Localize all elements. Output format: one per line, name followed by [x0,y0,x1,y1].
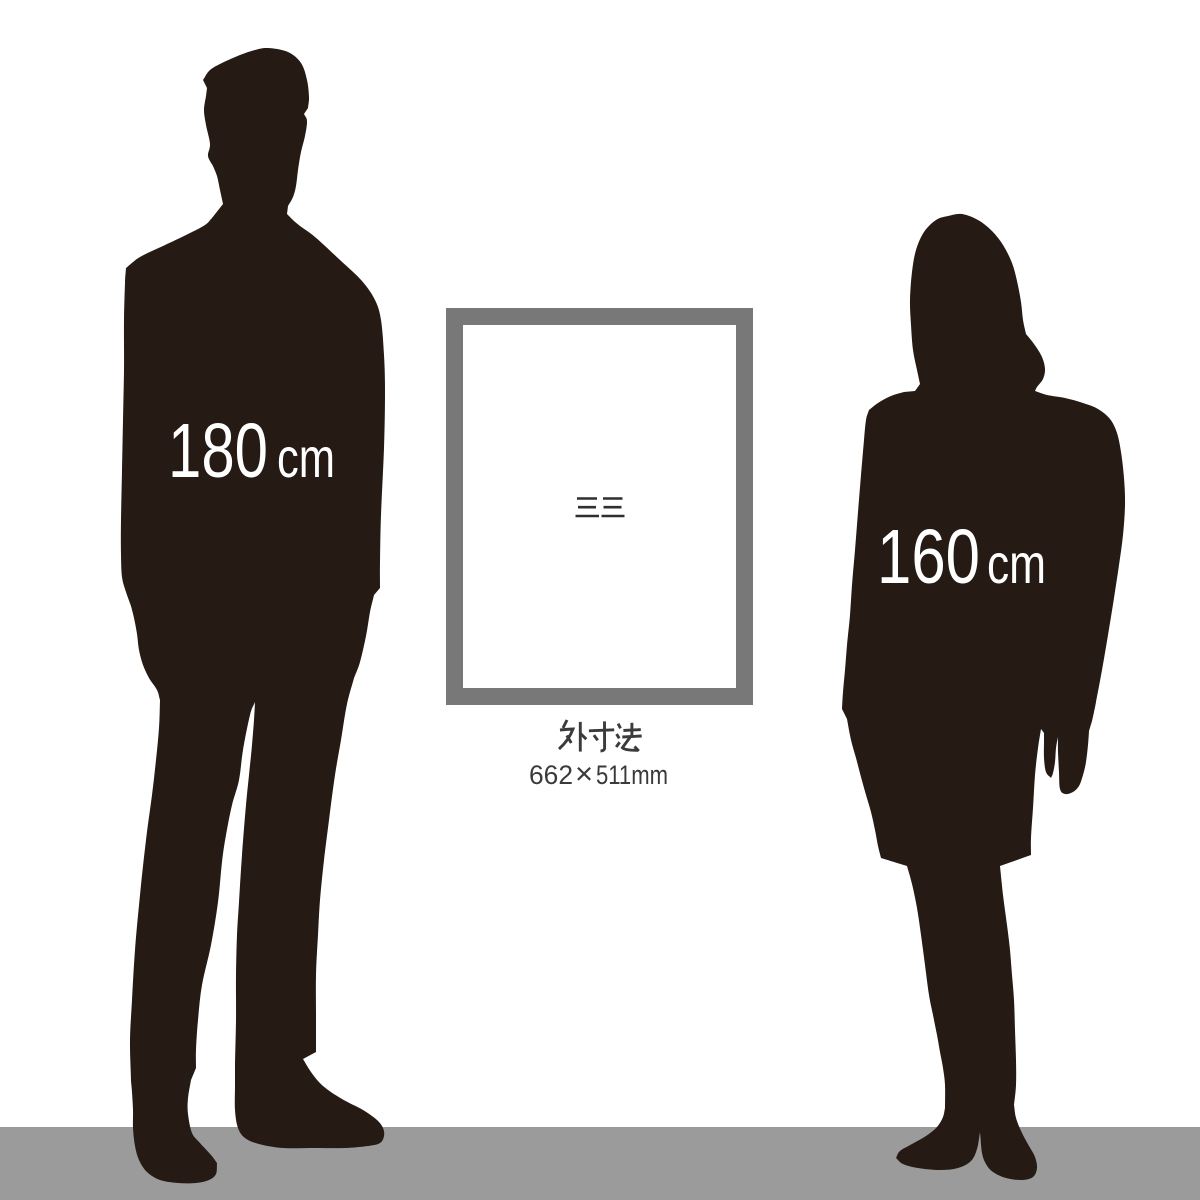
svg-text:cm: cm [277,426,335,489]
svg-text:180: 180 [168,408,268,494]
svg-text:511mm: 511mm [596,760,668,790]
svg-text:×: × [575,756,593,791]
svg-text:cm: cm [987,532,1046,595]
svg-text:160: 160 [877,514,980,600]
svg-text:662: 662 [529,760,573,790]
